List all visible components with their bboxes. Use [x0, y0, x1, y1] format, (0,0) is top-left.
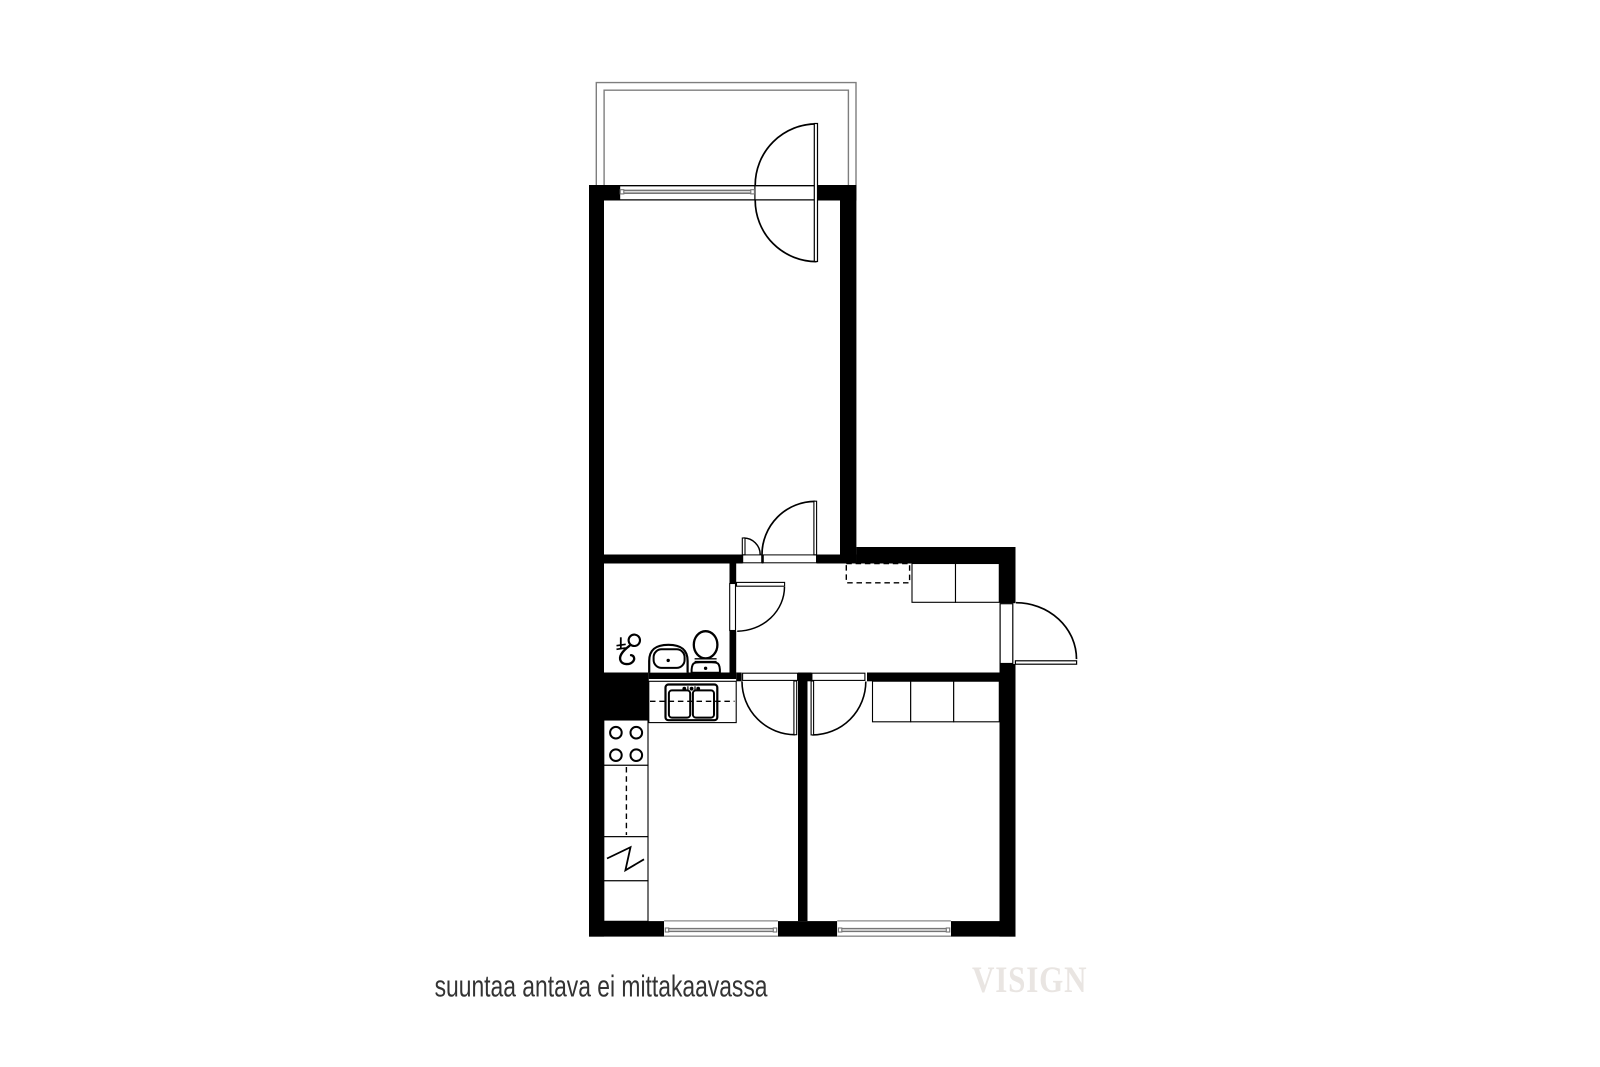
svg-text:VISIGN: VISIGN — [972, 961, 1087, 1001]
svg-text:suuntaa antava ei mittakaavass: suuntaa antava ei mittakaavassa — [435, 969, 768, 1003]
